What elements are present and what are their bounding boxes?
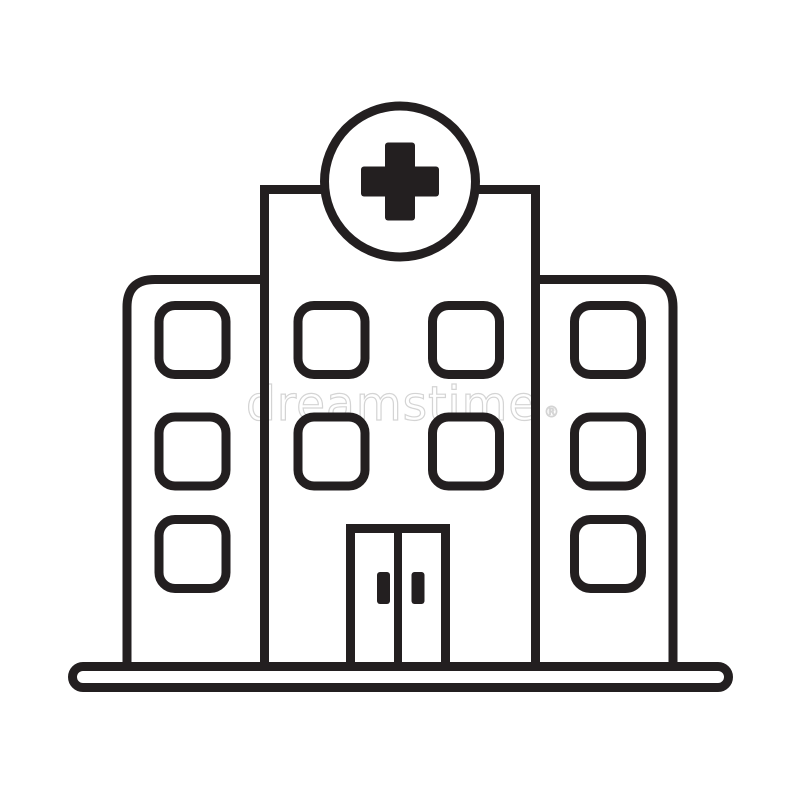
window-tower-col1-row1 xyxy=(298,306,365,375)
stock-image-canvas: dreamstime ® xyxy=(0,0,800,800)
building-left-wing xyxy=(127,280,260,679)
window-left-wing-row2 xyxy=(159,417,226,486)
window-right-wing-row2 xyxy=(575,417,642,486)
window-tower-col2-row1 xyxy=(433,306,500,375)
door-handle-right-icon xyxy=(412,572,425,604)
window-left-wing-row3 xyxy=(159,520,226,589)
door-handle-left-icon xyxy=(377,572,390,604)
window-right-wing-row1 xyxy=(575,306,642,375)
medical-cross-icon-vertical xyxy=(385,143,415,221)
hospital-building-icon xyxy=(0,0,800,800)
ground-base-bar xyxy=(73,667,729,688)
building-right-wing xyxy=(540,280,673,679)
window-left-wing-row1 xyxy=(159,306,226,375)
window-tower-col1-row2 xyxy=(298,417,365,486)
window-right-wing-row3 xyxy=(575,520,642,589)
window-tower-col2-row2 xyxy=(433,417,500,486)
